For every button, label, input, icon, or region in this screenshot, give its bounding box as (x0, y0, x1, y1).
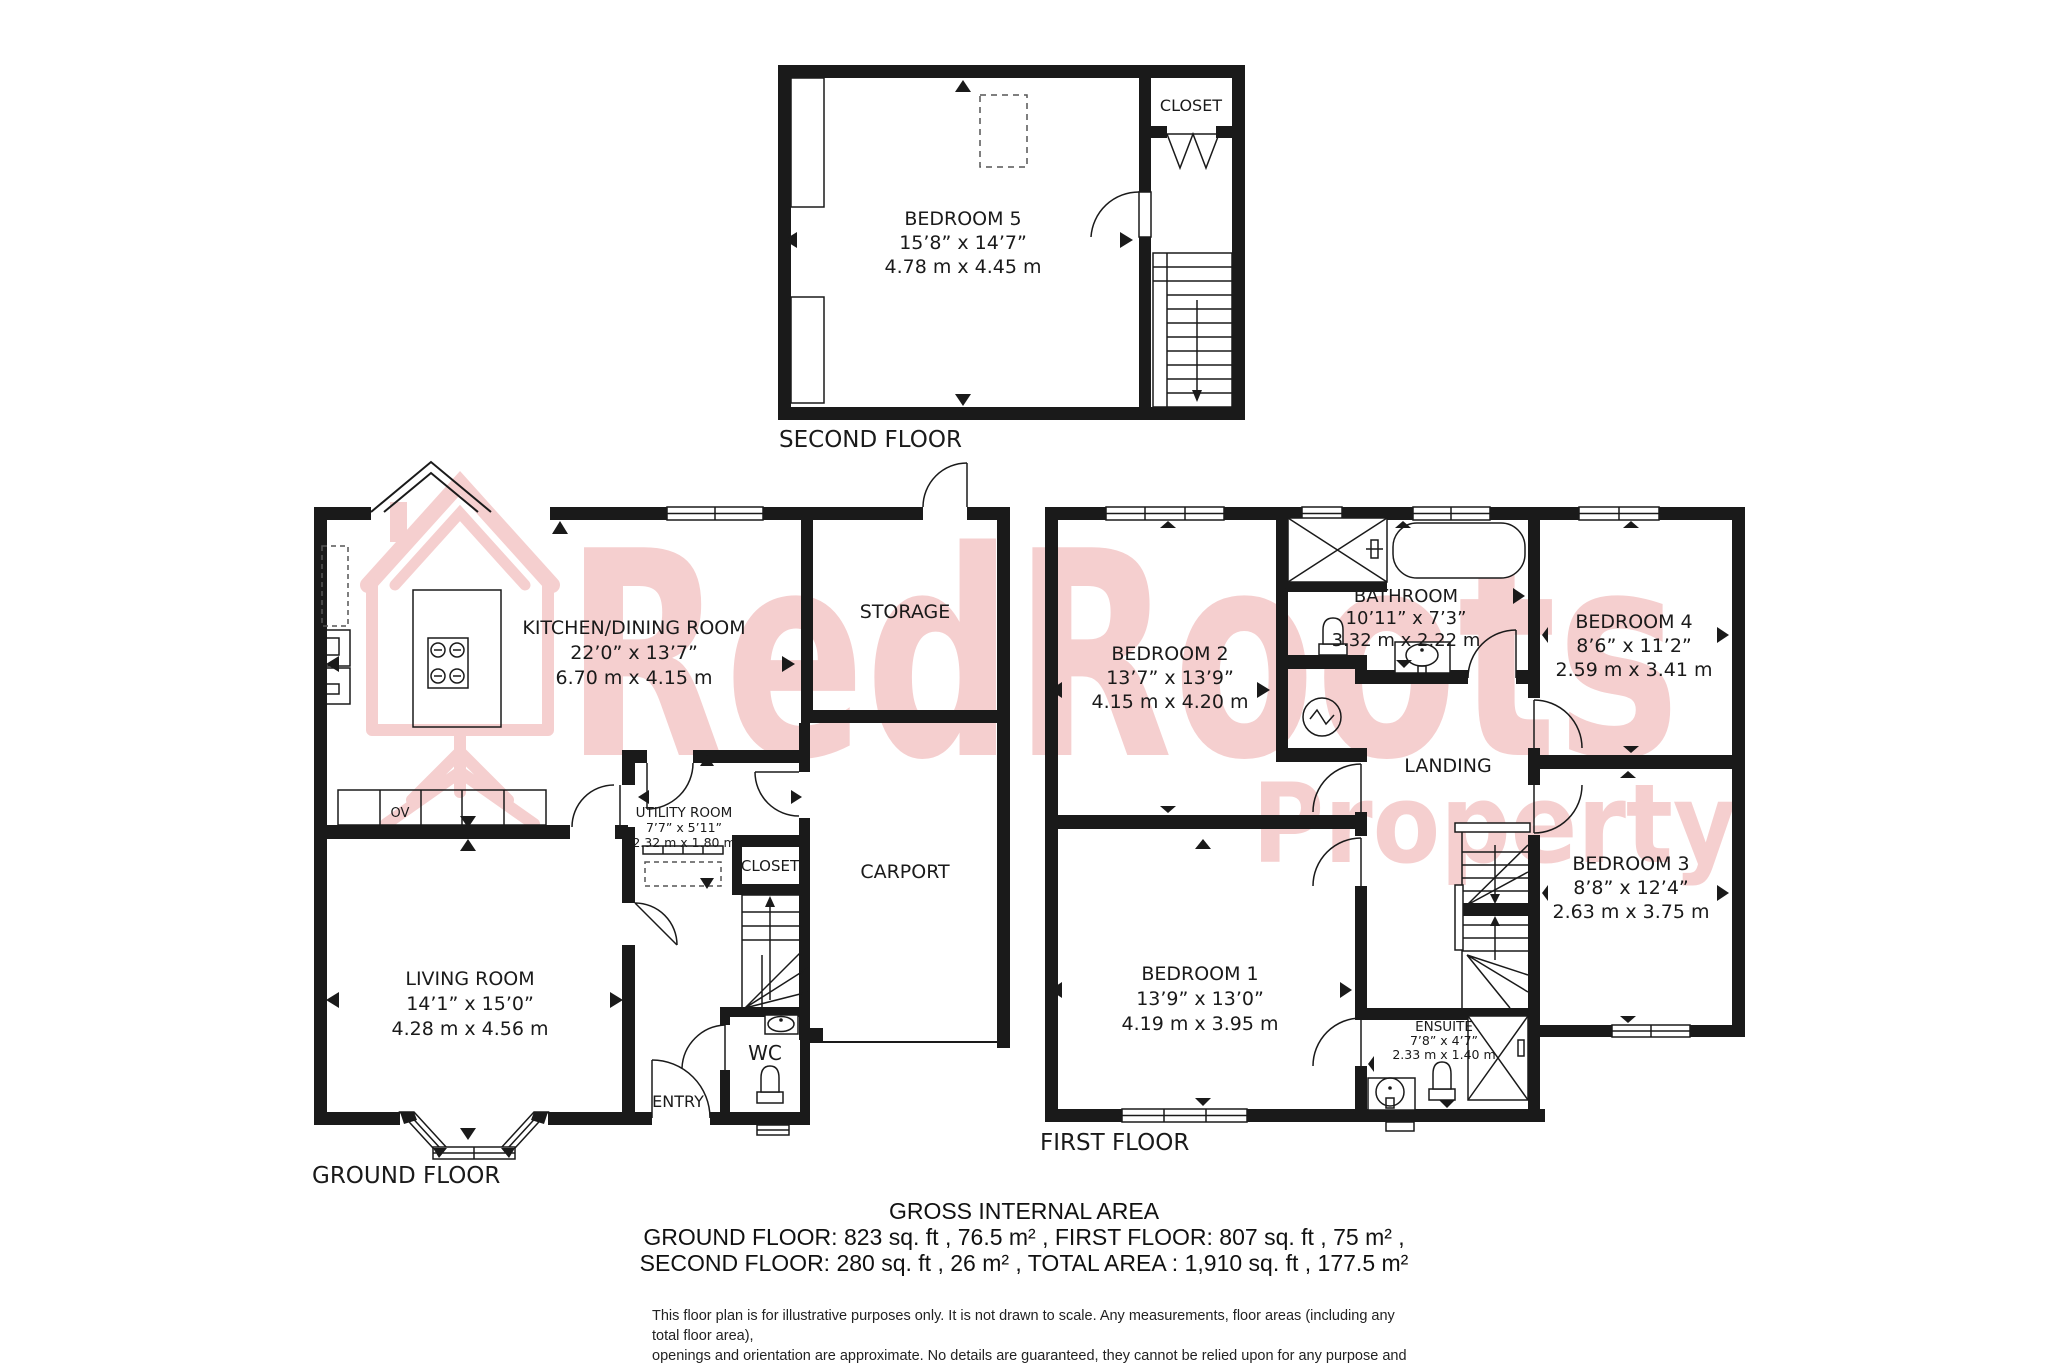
room-dims-m-bedroom3: 2.63 m x 3.75 m (1552, 901, 1709, 923)
room-label-oven: OV (391, 806, 410, 821)
room-dims-ft-bedroom5: 15’8” x 14’7” (899, 232, 1027, 254)
room-label-landing: LANDING (1404, 755, 1491, 777)
room-label-closet-ground: CLOSET (741, 857, 800, 875)
room-label-bedroom3: BEDROOM 3 (1572, 853, 1689, 875)
floor-title-ground: GROUND FLOOR (312, 1163, 500, 1189)
area-summary-line2: SECOND FLOOR: 280 sq. ft , 26 m² , TOTAL… (0, 1250, 2048, 1276)
room-dims-m-living: 4.28 m x 4.56 m (391, 1018, 548, 1040)
floor-title-first: FIRST FLOOR (1040, 1130, 1189, 1156)
window-icon (667, 507, 763, 520)
toilet-icon (1429, 1062, 1455, 1100)
eaves-storage-icon (791, 78, 824, 207)
bay-window-icon (400, 1112, 548, 1159)
chimney-dashed-icon (980, 95, 1027, 167)
window-icon (1122, 1109, 1247, 1122)
room-dims-ft-bedroom2: 13’7” x 13’9” (1106, 667, 1234, 689)
disclaimer-line: openings and orientation are approximate… (652, 1346, 1412, 1365)
room-dims-ft-bedroom4: 8’6” x 11’2” (1576, 635, 1692, 657)
room-label-wc: WC (748, 1041, 782, 1065)
room-dims-ft-bedroom3: 8’8” x 12’4” (1573, 877, 1689, 899)
room-dims-m-bedroom2: 4.15 m x 4.20 m (1091, 691, 1248, 713)
room-dims-ft-living: 14’1” x 15’0” (406, 993, 534, 1015)
room-label-carport: CARPORT (860, 861, 950, 883)
room-label-storage: STORAGE (860, 601, 950, 623)
room-label-kitchen: KITCHEN/DINING ROOM (522, 617, 745, 639)
door-swing-icon (1091, 192, 1151, 237)
room-label-living: LIVING ROOM (405, 968, 534, 990)
room-label-bedroom2: BEDROOM 2 (1111, 643, 1228, 665)
shower-icon (1288, 518, 1387, 582)
bifold-door-icon (1167, 134, 1219, 168)
room-dims-m-bathroom: 3.32 m x 2.22 m (1332, 630, 1481, 651)
room-dims-m-kitchen: 6.70 m x 4.15 m (555, 667, 712, 689)
disclaimer-line: This floor plan is for illustrative purp… (652, 1306, 1412, 1346)
room-label-bathroom: BATHROOM (1354, 586, 1458, 607)
floorplan-page: RedRoots Property (0, 0, 2048, 1365)
room-dims-ft-bathroom: 10’11” x 7’3” (1346, 608, 1467, 629)
hob-icon (428, 638, 468, 688)
bathtub-icon (1393, 523, 1525, 578)
room-dims-ft-bedroom1: 13’9” x 13’0” (1136, 988, 1264, 1010)
room-label-utility: UTILITY ROOM (636, 805, 733, 821)
floor-title-second: SECOND FLOOR (779, 427, 962, 453)
room-dims-m-bedroom5: 4.78 m x 4.45 m (884, 256, 1041, 278)
room-dims-ft-kitchen: 22’0” x 13’7” (570, 642, 698, 664)
room-dims-m-ensuite: 2.33 m x 1.40 m (1392, 1047, 1495, 1062)
room-label-bedroom4: BEDROOM 4 (1575, 611, 1692, 633)
sink-icon (1368, 1078, 1415, 1110)
eaves-storage-icon (791, 297, 824, 403)
floor-plan-second: BEDROOM 5 15’8” x 14’7” 4.78 m x 4.45 m … (778, 65, 1245, 453)
watermark-logo-house-icon (368, 483, 552, 824)
toilet-icon (757, 1066, 783, 1103)
stairs-icon (742, 895, 808, 1010)
room-dims-m-bedroom4: 2.59 m x 3.41 m (1555, 659, 1712, 681)
room-dims-ft-utility: 7’7” x 5’11” (646, 820, 722, 835)
door-swing-icon (682, 1025, 725, 1070)
room-label-closet-second: CLOSET (1160, 96, 1222, 115)
floorplan-drawing: RedRoots Property (0, 0, 2048, 1365)
room-dims-m-utility: 2.32 m x 1.80 m (632, 835, 735, 850)
door-swing-icon (1313, 1018, 1361, 1066)
area-summary-title: GROSS INTERNAL AREA (0, 1198, 2048, 1224)
disclaimer: This floor plan is for illustrative purp… (652, 1306, 1412, 1365)
stairs-icon (1153, 253, 1232, 407)
room-label-bedroom1: BEDROOM 1 (1141, 963, 1258, 985)
area-summary-line1: GROUND FLOOR: 823 sq. ft , 76.5 m² , FIR… (0, 1224, 2048, 1250)
room-label-bedroom5: BEDROOM 5 (904, 208, 1021, 230)
area-summary: GROSS INTERNAL AREA GROUND FLOOR: 823 sq… (0, 1198, 2048, 1276)
window-icon (1612, 1025, 1690, 1037)
room-label-entry: ENTRY (652, 1092, 704, 1111)
kitchen-island-icon (413, 590, 501, 727)
room-dims-ft-ensuite: 7’8” x 4’7” (1410, 1033, 1478, 1048)
sink-icon (765, 1015, 798, 1034)
room-dims-m-bedroom1: 4.19 m x 3.95 m (1121, 1013, 1278, 1035)
door-step-icon (1386, 1122, 1414, 1131)
door-swing-icon (635, 903, 677, 945)
